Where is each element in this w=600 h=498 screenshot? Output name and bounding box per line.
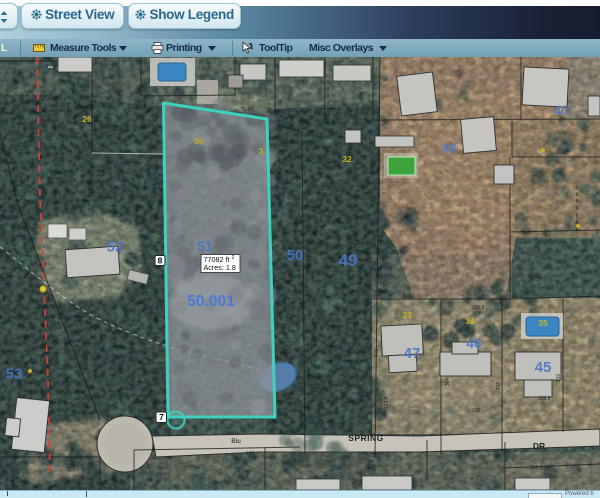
svg-text:50: 50 xyxy=(287,247,304,264)
svg-text:50.001: 50.001 xyxy=(187,293,235,310)
svg-text:100: 100 xyxy=(412,410,421,416)
svg-text:8: 8 xyxy=(158,256,163,266)
svg-text:124.3: 124.3 xyxy=(384,397,390,410)
svg-text:52: 52 xyxy=(107,239,124,256)
svg-text:32: 32 xyxy=(342,154,352,164)
svg-text:35: 35 xyxy=(538,318,548,328)
svg-text:123: 123 xyxy=(246,451,255,457)
svg-text:33: 33 xyxy=(402,310,412,320)
svg-text:200: 200 xyxy=(67,464,76,470)
svg-text:216: 216 xyxy=(496,382,502,391)
svg-text:40: 40 xyxy=(553,103,568,118)
svg-text:DR: DR xyxy=(533,441,545,451)
svg-text:610: 610 xyxy=(529,273,538,279)
svg-text:46: 46 xyxy=(466,335,482,351)
svg-text:2: 2 xyxy=(232,255,235,261)
svg-text:26: 26 xyxy=(82,114,92,124)
svg-text:SPRING: SPRING xyxy=(348,433,384,443)
svg-text:51: 51 xyxy=(197,239,213,254)
svg-text:30: 30 xyxy=(194,136,204,146)
svg-text:Blu: Blu xyxy=(231,438,241,445)
svg-text:7: 7 xyxy=(159,412,164,422)
svg-text:100: 100 xyxy=(472,408,481,414)
svg-text:315: 315 xyxy=(556,374,562,383)
svg-text:304: 304 xyxy=(445,378,451,387)
svg-text:3: 3 xyxy=(259,146,264,156)
svg-text:160: 160 xyxy=(298,119,307,125)
svg-text:49: 49 xyxy=(339,251,358,270)
svg-text:100.1: 100.1 xyxy=(403,294,416,300)
svg-text:80: 80 xyxy=(478,455,484,461)
svg-text:45: 45 xyxy=(535,359,552,376)
svg-text:53: 53 xyxy=(6,366,23,383)
svg-text:34: 34 xyxy=(465,316,475,326)
svg-text:Acres: 1.8: Acres: 1.8 xyxy=(204,263,236,272)
svg-text:309: 309 xyxy=(374,349,380,358)
svg-text:48: 48 xyxy=(441,141,457,156)
svg-text:104.9: 104.9 xyxy=(530,465,543,471)
svg-text:105.9: 105.9 xyxy=(472,305,485,311)
svg-text:109.8: 109.8 xyxy=(538,396,551,402)
svg-text:47: 47 xyxy=(404,345,421,362)
svg-text:70.99: 70.99 xyxy=(241,107,254,113)
svg-text:223: 223 xyxy=(370,453,379,459)
